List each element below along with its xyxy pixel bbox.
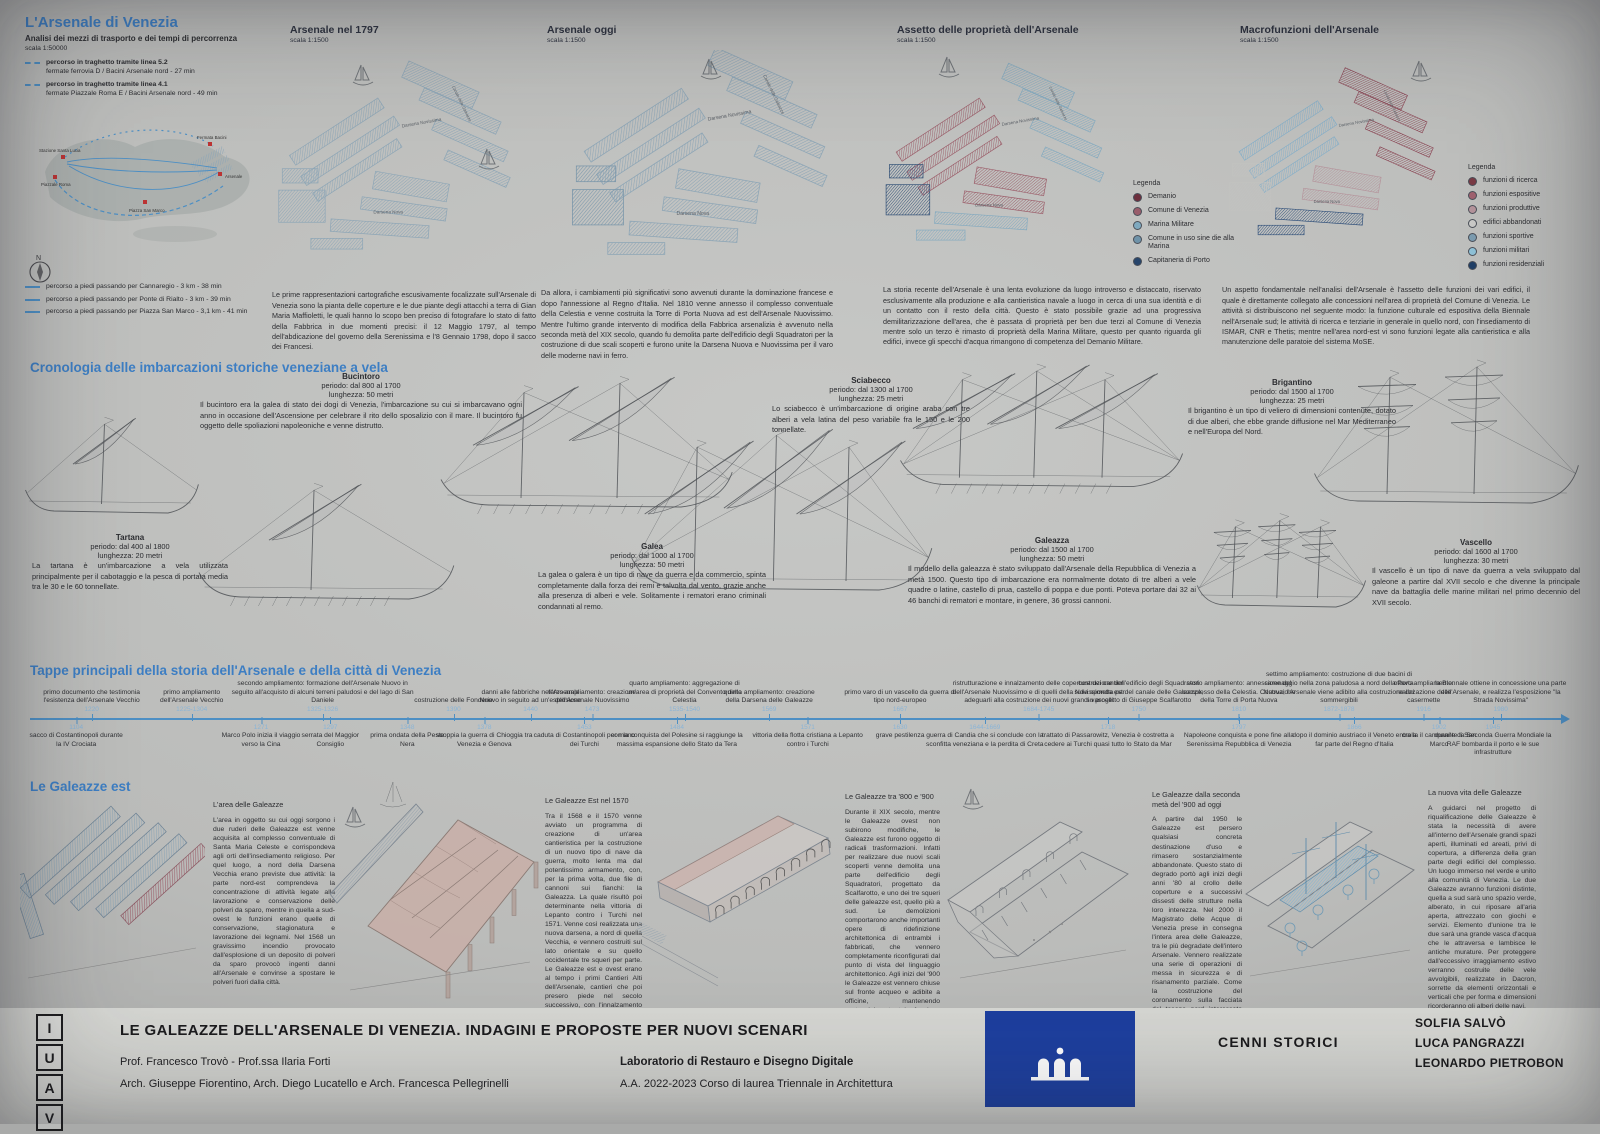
sailboat-doodle-icon [478, 146, 500, 177]
course-name: A.A. 2022-2023 Corso di laurea Triennale… [620, 1078, 893, 1090]
legend-item: Demanio [1133, 193, 1253, 202]
legend-item: funzioni espositive [1468, 191, 1588, 200]
ship-length: lunghezza: 30 metri [1372, 556, 1580, 565]
legend-swatch-icon [1468, 191, 1477, 200]
panel-transit: L'Arsenale di Venezia Analisi dei mezzi … [25, 14, 273, 336]
venice-transit-map: Stazione Santa Lucia Piazzale Roma Piazz… [25, 102, 273, 252]
legend-label: Demanio [1148, 193, 1176, 201]
svg-text:Stazione Santa Lucia: Stazione Santa Lucia [39, 148, 81, 153]
timeline-event-label: con la conquista del Polesine si raggiun… [602, 732, 752, 749]
legend-label: funzioni residenziali [1483, 261, 1544, 269]
timeline-event-label: dopo il dominio austriaco il Veneto entr… [1289, 732, 1419, 749]
ferry-route-item: percorso in traghetto tramite linea 5.2f… [25, 58, 273, 76]
legend-label: funzioni espositive [1483, 191, 1540, 199]
timeline-event: secondo ampliamento: formazione dell'Ars… [228, 680, 418, 714]
legend-swatch-icon [1468, 219, 1477, 228]
timeline-event-label: Marco Polo inizia il viaggio verso la Ci… [219, 732, 304, 749]
timeline-event-label: serrata del Maggior Consiglio [295, 732, 365, 749]
sailboat-doodle-icon [938, 54, 960, 85]
lab-name: Laboratorio di Restauro e Disegno Digita… [620, 1056, 853, 1068]
timeline-event-date: 1297 [295, 724, 365, 732]
galeazze-column-text: Durante il XIX secolo, mentre le Galeazz… [845, 808, 940, 1034]
ship-period: periodo: dal 1600 al 1700 [1372, 547, 1580, 556]
legend-swatch-icon [1468, 247, 1477, 256]
ship-description: Il vascello è un tipo di nave da guerra … [1372, 566, 1580, 608]
timeline-event-date: 1797 [1174, 724, 1304, 732]
map-oggi-header: Arsenale oggi scala 1:1500 [547, 24, 616, 44]
section-tag: CENNI STORICI [1218, 1034, 1339, 1050]
walk-route-text: percorso a piedi passando per Piazza San… [46, 307, 247, 316]
map-1797-scale: scala 1:1500 [290, 37, 379, 44]
map-drawing-assetto: Darsena Novissima Darsena Nova Canale de… [876, 48, 1128, 276]
timeline-event-label: primo ampliamento dell'Arsenale Vecchio [152, 689, 232, 706]
iuav-letter-box: I [36, 1014, 63, 1041]
university-logo [985, 1011, 1135, 1107]
map-macro-scale: scala 1:1500 [1240, 37, 1379, 44]
svg-text:Piazza San Marco: Piazza San Marco [129, 208, 165, 213]
legend-swatch-icon [1133, 193, 1142, 202]
timeline-event-date: 1325-1326 [228, 706, 418, 714]
walk-route-item: percorso a piedi passando per Cannaregio… [25, 282, 273, 291]
panel-transit-scale: scala 1:50000 [25, 45, 273, 52]
map-assetto-scale: scala 1:1500 [897, 37, 1079, 44]
legend-swatch-icon [1133, 257, 1142, 266]
timeline-event: primo varo di un vascello da guerra di t… [840, 689, 960, 714]
svg-text:Arsenale: Arsenale [225, 174, 243, 179]
legend-item: funzioni sportive [1468, 233, 1588, 242]
iuav-letter-box: A [36, 1074, 63, 1101]
timeline-event-date: 1271 [219, 724, 304, 732]
legend-title: Legenda [1133, 180, 1253, 187]
timeline-event: 1104 sacco di Costantinopoli durante la … [29, 724, 124, 749]
legend-label: funzioni sportive [1483, 233, 1534, 241]
legend-item: edifici abbandonati [1468, 219, 1588, 228]
tartana-sketch [16, 392, 206, 537]
timeline-event-date: 1718 [1038, 724, 1178, 732]
legend-item: funzioni residenziali [1468, 261, 1588, 270]
timeline-event: 1718 trattato di Passarowitz, Venezia è … [1038, 724, 1178, 749]
panel-transit-subtitle: Analisi dei mezzi di trasporto e dei tem… [25, 34, 273, 43]
timeline-event-label: Napoleone conquista e pone fine alla Ser… [1174, 732, 1304, 749]
ship-period: periodo: dal 1500 al 1700 [908, 545, 1196, 554]
iuav-letter-box: V [36, 1104, 63, 1131]
ship-card: Vascello periodo: dal 1600 al 1700 lungh… [1372, 538, 1580, 608]
legend-items: funzioni di ricerca funzioni espositive … [1468, 177, 1588, 270]
legend-label: Capitaneria di Porto [1148, 257, 1210, 265]
legend-swatch-icon [1468, 205, 1477, 214]
timeline-event-label: vittoria della flotta cristiana a Lepant… [750, 732, 865, 749]
ferry-route-legend: percorso in traghetto tramite linea 5.2f… [25, 58, 273, 102]
authors-list: SOLFIA SALVÒLUCA PANGRAZZILEONARDO PIETR… [1415, 1016, 1564, 1076]
svg-text:Fermata Bacini: Fermata Bacini [197, 135, 227, 140]
solid-route-icon [25, 286, 40, 291]
poster-title: LE GALEAZZE DELL'ARSENALE DI VENEZIA. IN… [120, 1022, 808, 1039]
map-macro-header: Macrofunzioni dell'Arsenale scala 1:1500 [1240, 24, 1379, 44]
sailboat-doodle-icon [344, 804, 366, 835]
legend-item: funzioni di ricerca [1468, 177, 1588, 186]
timeline-event: quinto ampliamento: creazione della Dars… [719, 689, 819, 714]
legend-label: funzioni produttive [1483, 205, 1540, 213]
svg-text:Darsena Nova: Darsena Nova [1314, 199, 1341, 204]
ship-name: Galeazza [908, 536, 1196, 545]
timeline-event: 1484 con la conquista del Polesine si ra… [602, 724, 752, 749]
timeline-event-date: 1220 [42, 706, 142, 714]
legend-items: Demanio Comune di Venezia Marina Militar… [1133, 193, 1253, 266]
svg-text:Darsena Nova: Darsena Nova [677, 211, 710, 217]
author-name: LUCA PANGRAZZI [1415, 1036, 1564, 1050]
galeazza-sketch [885, 340, 1195, 517]
map-assetto-title: Assetto delle proprietà dell'Arsenale [897, 24, 1079, 36]
timeline-event-label: quinto ampliamento: creazione della Dars… [719, 689, 819, 706]
galeazze-column-heading: L'area delle Galeazze [213, 800, 335, 810]
compass-icon: N [25, 252, 55, 286]
timeline-event-date: 1104 [29, 724, 124, 732]
timeline-event-label: primo documento che testimonia l'esisten… [42, 689, 142, 706]
legend-swatch-icon [1133, 207, 1142, 216]
timeline-event: 1271 Marco Polo inizia il viaggio verso … [219, 724, 304, 749]
legend-title: Legenda [1468, 164, 1588, 171]
professors-credit: Prof. Francesco Trovò - Prof.ssa Ilaria … [120, 1056, 330, 1068]
map-1797-header: Arsenale nel 1797 scala 1:1500 [290, 24, 379, 44]
ship-card: Galeazza periodo: dal 1500 al 1700 lungh… [908, 536, 1196, 606]
timeline-event-label: primo varo di un vascello da guerra di t… [840, 689, 960, 706]
timeline-event-label: guerra di Candia che si conclude con la … [915, 732, 1055, 749]
timeline-event-label: durante la Seconda Guerra Mondiale la RA… [1428, 732, 1558, 758]
svg-text:N: N [36, 255, 41, 262]
galeazze-column: L'area delle Galeazze L'area in oggetto … [213, 800, 335, 987]
timeline-event-date: 1225-1304 [152, 706, 232, 714]
svg-text:Piazzale Roma: Piazzale Roma [41, 182, 71, 187]
sailboat-doodle-icon [1410, 58, 1432, 89]
timeline-event-date: 1644-1669 [915, 724, 1055, 732]
architects-credit: Arch. Giuseppe Fiorentino, Arch. Diego L… [120, 1078, 509, 1090]
timeline: primo documento che testimonia l'esisten… [30, 666, 1570, 778]
legend-item: funzioni militari [1468, 247, 1588, 256]
ship-length: lunghezza: 50 metri [908, 554, 1196, 563]
timeline-event-date: 1484 [602, 724, 752, 732]
legend-label: Comune di Venezia [1148, 207, 1209, 215]
map-assetto-header: Assetto delle proprietà dell'Arsenale sc… [897, 24, 1079, 44]
timeline-event-label: trattato di Passarowitz, Venezia è costr… [1038, 732, 1178, 749]
legend-swatch-icon [1133, 235, 1142, 244]
map-assetto-caption: La storia recente dell'Arsenale è una le… [883, 285, 1201, 348]
walk-route-legend: percorso a piedi passando per Cannaregio… [25, 282, 273, 320]
svg-text:Darsena Nova: Darsena Nova [373, 209, 403, 214]
legend-swatch-icon [1468, 233, 1477, 242]
dashed-route-icon [25, 62, 40, 76]
galeazze-column-text: A guidarci nel progetto di riqualificazi… [1428, 804, 1536, 1012]
legend-macrofunzioni: Legenda funzioni di ricerca funzioni esp… [1468, 164, 1588, 275]
legend-label: funzioni militari [1483, 247, 1529, 255]
legend-label: edifici abbandonati [1483, 219, 1541, 227]
ferry-route-item: percorso in traghetto tramite linea 4.1f… [25, 80, 273, 98]
timeline-event: 1945 durante la Seconda Guerra Mondiale … [1428, 724, 1558, 758]
timeline-event-date: 1378 [427, 724, 542, 732]
author-name: LEONARDO PIETROBON [1415, 1056, 1564, 1070]
galeazze-arcade-drawing [628, 786, 840, 997]
timeline-axis [30, 718, 1561, 720]
footer: IUAV LE GALEAZZE DELL'ARSENALE DI VENEZI… [0, 1008, 1600, 1124]
sailboat-doodle-icon [962, 786, 984, 817]
timeline-event-label: secondo ampliamento: formazione dell'Ars… [228, 680, 418, 706]
author-name: SOLFIA SALVÒ [1415, 1016, 1564, 1030]
legend-label: funzioni di ricerca [1483, 177, 1537, 185]
timeline-arrow-icon [1561, 714, 1570, 724]
timeline-event: 1866 dopo il dominio austriaco il Veneto… [1289, 724, 1419, 749]
legend-item: Marina Militare [1133, 221, 1253, 230]
ferry-route-text: percorso in traghetto tramite linea 4.1f… [46, 80, 218, 98]
map-1797-caption: Le prime rappresentazioni cartografiche … [272, 290, 536, 353]
walk-route-text: percorso a piedi passando per Cannaregio… [46, 282, 222, 291]
galeazze-column: La nuova vita delle Galeazze A guidarci … [1428, 788, 1536, 1011]
ship-description: Il modello della galeazza è stato svilup… [908, 564, 1196, 606]
timeline-event-date: 1571 [750, 724, 865, 732]
galeazze-project-drawing [1232, 778, 1424, 1005]
timeline-event-date: 1667 [840, 706, 960, 714]
timeline-event-label: la Biennale ottiene in concessione una p… [1431, 680, 1571, 706]
panel-transit-title: L'Arsenale di Venezia [25, 14, 273, 31]
galeazze-column-text: L'area in oggetto su cui oggi sorgono i … [213, 816, 335, 988]
iuav-logo: IUAV [36, 1014, 63, 1134]
timeline-event-date: 1945 [1428, 724, 1558, 732]
poster-canvas: L'Arsenale di Venezia Analisi dei mezzi … [0, 0, 1600, 1124]
iuav-letter-box: U [36, 1044, 63, 1071]
solid-route-icon [25, 299, 40, 304]
timeline-event-date: 1569 [719, 706, 819, 714]
legend-item: Comune di Venezia [1133, 207, 1253, 216]
timeline-event: la Biennale ottiene in concessione una p… [1431, 680, 1571, 714]
galeazze-column: Le Galeazze tra '800 e '900 Durante il X… [845, 792, 940, 1033]
legend-swatch-icon [1133, 221, 1142, 230]
legend-item: Capitaneria di Porto [1133, 257, 1253, 266]
legend-proprieta: Legenda Demanio Comune di Venezia Marina… [1133, 180, 1253, 271]
map-1797-title: Arsenale nel 1797 [290, 24, 379, 36]
walk-route-text: percorso a piedi passando per Ponte di R… [46, 295, 231, 304]
solid-route-icon [25, 311, 40, 316]
dashed-route-icon [25, 84, 40, 98]
map-macro-title: Macrofunzioni dell'Arsenale [1240, 24, 1379, 36]
timeline-event: 1297 serrata del Maggior Consiglio [295, 724, 365, 749]
timeline-event: 1378 scoppia la guerra di Chioggia tra V… [427, 724, 542, 749]
svg-text:Darsena Nova: Darsena Nova [975, 203, 1003, 208]
timeline-event-date: 1866 [1289, 724, 1419, 732]
galeazze-plan-drawing [20, 788, 205, 1005]
legend-swatch-icon [1468, 261, 1477, 270]
sailboat-doodle-icon [700, 56, 722, 87]
galeazze-column-heading: Le Galeazze dalla seconda metà del '900 … [1152, 790, 1242, 809]
legend-label: Comune in uso sine die alla Marina [1148, 235, 1253, 252]
timeline-event-label: sacco di Costantinopoli durante la IV Cr… [29, 732, 124, 749]
map-oggi-title: Arsenale oggi [547, 24, 616, 36]
galeazze-column-heading: La nuova vita delle Galeazze [1428, 788, 1536, 798]
timeline-event-date: 1980 [1431, 706, 1571, 714]
sailboat-doodle-icon [352, 62, 374, 93]
timeline-event: 1797 Napoleone conquista e pone fine all… [1174, 724, 1304, 749]
timeline-event: 1571 vittoria della flotta cristiana a L… [750, 724, 865, 749]
walk-route-item: percorso a piedi passando per Ponte di R… [25, 295, 273, 304]
timeline-event: primo ampliamento dell'Arsenale Vecchio … [152, 689, 232, 714]
ferry-route-text: percorso in traghetto tramite linea 5.2f… [46, 58, 195, 76]
legend-item: Comune in uso sine die alla Marina [1133, 235, 1253, 252]
timeline-event: 1644-1669 guerra di Candia che si conclu… [915, 724, 1055, 749]
map-oggi-scale: scala 1:1500 [547, 37, 616, 44]
vascello-sketch [1188, 498, 1373, 628]
bucintoro-sketch [185, 450, 465, 630]
galeazze-column-heading: Le Galeazze tra '800 e '900 [845, 792, 940, 802]
legend-item: funzioni produttive [1468, 205, 1588, 214]
legend-label: Marina Militare [1148, 221, 1194, 229]
timeline-event-label: scoppia la guerra di Chioggia tra Venezi… [427, 732, 542, 749]
walk-route-item: percorso a piedi passando per Piazza San… [25, 307, 273, 316]
legend-swatch-icon [1468, 177, 1477, 186]
timeline-event: primo documento che testimonia l'esisten… [42, 689, 142, 714]
